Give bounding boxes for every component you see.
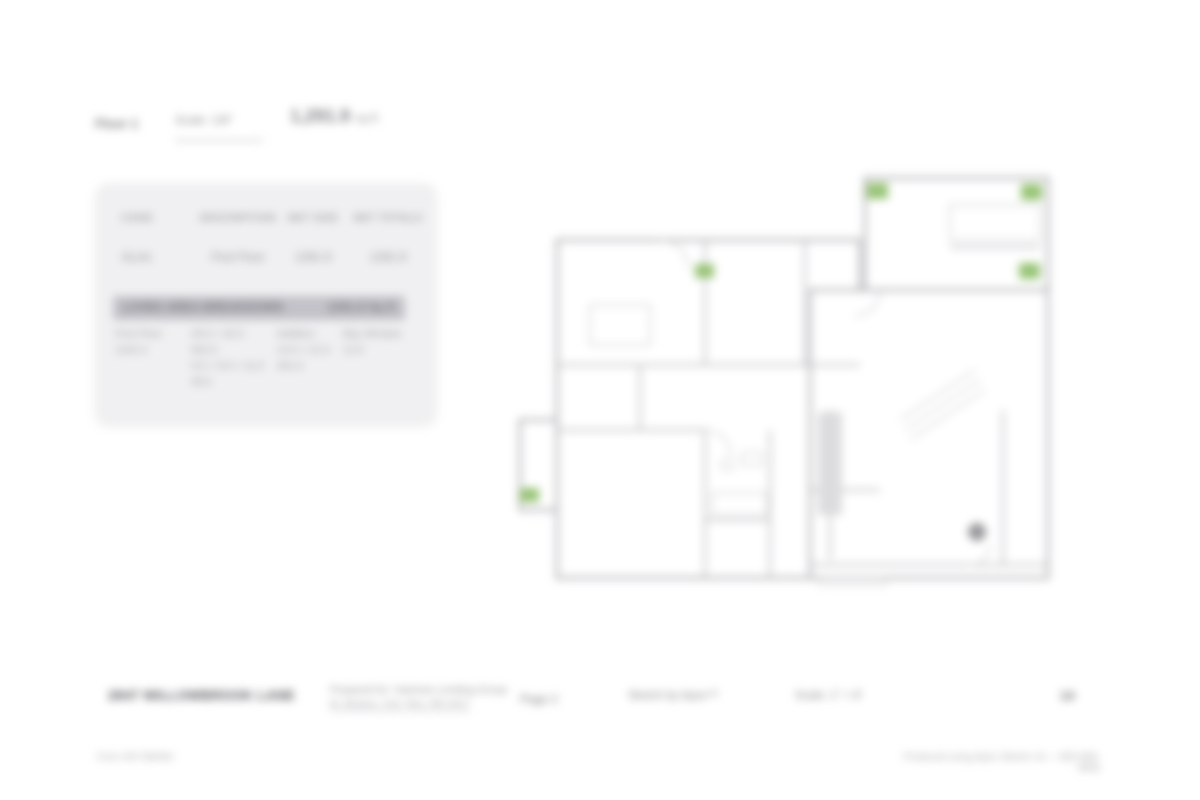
total-area-heading: 1,291.9 sq ft — [290, 106, 378, 127]
footer-prepared-block: Prepared for: Hartman Lending Group M. A… — [330, 683, 507, 712]
footer-sketch-credit: Sketch by Apex™ — [628, 690, 719, 702]
breakdown-col-2: 29.0 × 32.5 942.5 0.5 × 9.0 × 11.0 49.5 — [191, 326, 264, 390]
kitchen-counter-shape — [818, 412, 842, 515]
band-title: LIVING AREA BREAKDOWN — [123, 302, 283, 314]
cell-net-totals: 1291.9 — [349, 250, 427, 264]
cell-description: First Floor — [192, 250, 284, 264]
cell-net-size: 1291.9 — [277, 250, 349, 264]
breakdown-line: Bay Window — [343, 326, 401, 342]
green-marker-icon — [695, 264, 714, 278]
footer-address: 2847 WILLOWBROOK LANE — [108, 688, 295, 703]
area-calculations-panel: CODE DESCRIPTION NET SIZE NET TOTALS GLA… — [97, 184, 435, 423]
footer-scale-note: Scale: 1" = 8' — [795, 690, 862, 702]
breakdown-line: 1242.4 — [115, 342, 162, 358]
band-total: 1291.9 Sq ft — [327, 302, 395, 314]
produced-by-text: Produced using Apex Sketch v6 — 800-858-… — [900, 752, 1100, 774]
breakdown-col-4: Bay Window 12.6 — [343, 326, 401, 358]
floor-label: Floor 1 — [95, 116, 138, 131]
footer-prepared-value: M. Alvarez, Cert. Res. RD-4417 — [330, 699, 470, 711]
breakdown-line: Addition — [277, 326, 330, 342]
total-area-value: 1,291.9 — [290, 106, 350, 126]
breakdown-col-1: First Floor 1242.4 — [115, 326, 162, 358]
cell-code: GLA1 — [107, 250, 167, 264]
scale-underline — [175, 140, 263, 141]
footer-prepared-label: Prepared for: Hartman Lending Group — [330, 683, 507, 697]
fixture-shape — [968, 523, 986, 541]
scale-label: Scale: 1/8" — [175, 113, 233, 127]
footer-page-number: 14 — [1060, 688, 1074, 703]
blurred-content-layer: Floor 1 Scale: 1/8" 1,291.9 sq ft CODE D… — [0, 0, 1200, 800]
breakdown-line: 301.0 — [277, 358, 330, 374]
col-header-net-totals: NET TOTALS — [349, 212, 427, 224]
breakdown-col-3: Addition 14.0 × 21.5 301.0 — [277, 326, 330, 374]
living-area-breakdown-band: LIVING AREA BREAKDOWN 1291.9 Sq ft — [113, 296, 405, 320]
floor-plan-drawing — [505, 165, 1065, 590]
green-marker-icon — [1021, 184, 1042, 200]
col-header-description: DESCRIPTION — [192, 212, 284, 224]
breakdown-line: 0.5 × 9.0 × 11.0 — [191, 358, 264, 374]
col-header-net-size: NET SIZE — [277, 212, 349, 224]
green-marker-icon — [1019, 263, 1040, 279]
total-area-unit: sq ft — [355, 111, 378, 125]
breakdown-line: First Floor — [115, 326, 162, 342]
breakdown-line: 49.5 — [191, 374, 264, 390]
green-marker-icon — [520, 488, 539, 502]
green-marker-icon — [867, 183, 888, 199]
breakdown-line: 14.0 × 21.5 — [277, 342, 330, 358]
footer-page-label: Page 2 — [520, 692, 558, 706]
breakdown-line: 942.5 — [191, 342, 264, 358]
breakdown-line: 12.6 — [343, 342, 401, 358]
col-header-code: CODE — [107, 212, 167, 224]
floorplan-sketch-page: Floor 1 Scale: 1/8" 1,291.9 sq ft CODE D… — [0, 0, 1200, 800]
form-id-text: Form SKT.BldSkI — [97, 752, 173, 763]
breakdown-line: 29.0 × 32.5 — [191, 326, 264, 342]
